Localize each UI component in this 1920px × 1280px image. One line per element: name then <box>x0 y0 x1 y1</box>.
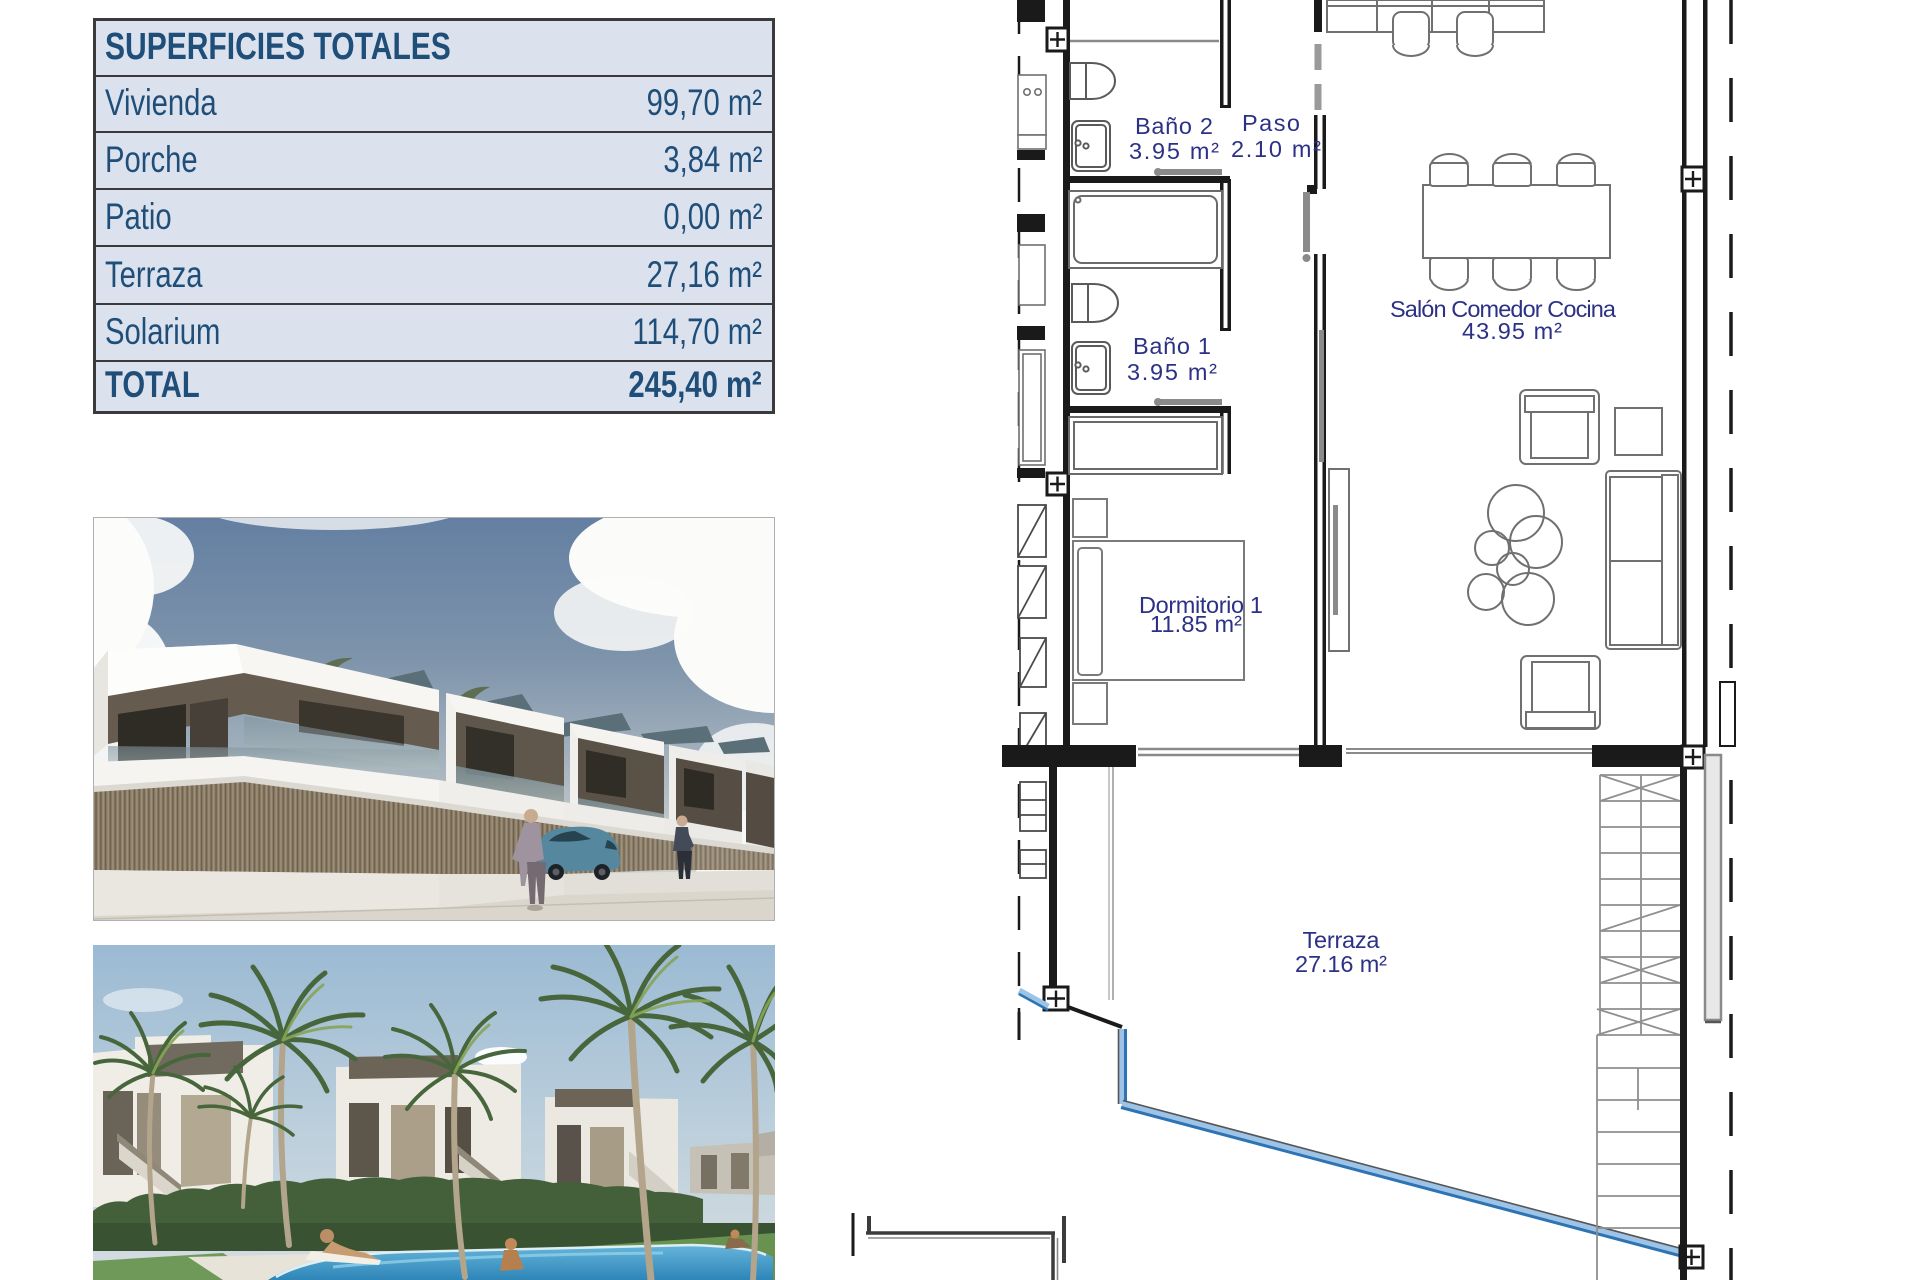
svg-text:43.95 m²: 43.95 m² <box>1462 318 1562 344</box>
svg-text:3.95 m²: 3.95 m² <box>1129 138 1219 164</box>
svg-text:27.16 m²: 27.16 m² <box>1295 951 1387 977</box>
svg-text:11.85 m²: 11.85 m² <box>1150 611 1242 637</box>
svg-text:3.95 m²: 3.95 m² <box>1127 359 1217 385</box>
svg-text:Baño 2: Baño 2 <box>1135 113 1213 139</box>
svg-text:Terraza: Terraza <box>1303 927 1381 953</box>
svg-text:Paso: Paso <box>1242 110 1300 136</box>
svg-text:2.10 m²: 2.10 m² <box>1231 136 1321 162</box>
svg-text:Baño 1: Baño 1 <box>1133 333 1211 359</box>
